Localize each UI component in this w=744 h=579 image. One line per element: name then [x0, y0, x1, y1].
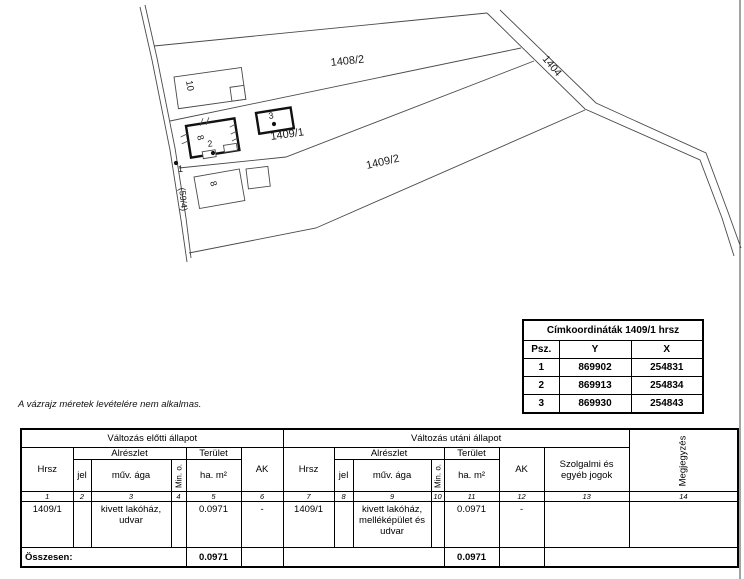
x-value: 254831: [631, 359, 703, 377]
total-row: Összesen: 0.0971 0.0971: [21, 548, 738, 568]
min-o-label: Min. o.: [433, 463, 442, 487]
col-header-terulet-after: Terület: [444, 448, 499, 460]
col-header-hrsz-after: Hrsz: [283, 448, 334, 492]
after-state-header: Változás utáni állapot: [283, 429, 629, 448]
col-number: 14: [629, 492, 738, 502]
cadastral-sketch-page: 1408/2 1409/1 1409/2 1404 (59/4) 10 8 8 …: [0, 0, 744, 579]
before-jel-value: [73, 502, 91, 548]
parcel-label-1409-2: 1409/2: [365, 153, 400, 172]
col-header-min-o-after: Min. o.: [431, 460, 444, 492]
not-to-scale-note: A vázrajz méretek levételére nem alkalma…: [18, 399, 201, 410]
coordinate-table-title: Címkoordináták 1409/1 hrsz: [523, 320, 703, 341]
parcel-1408-2-top-boundary: [154, 13, 487, 46]
col-number: 3: [91, 492, 171, 502]
after-terulet-value: 0.0971: [444, 502, 499, 548]
col-header-x: X: [631, 341, 703, 359]
col-number: 8: [334, 492, 353, 502]
col-number: 12: [499, 492, 544, 502]
min-o-label: Min. o.: [174, 463, 183, 487]
col-header-jel-after: jel: [334, 460, 353, 492]
total-label: Összesen:: [21, 548, 186, 568]
after-ak-value: -: [499, 502, 544, 548]
col-header-terulet-before: Terület: [186, 448, 241, 460]
col-number: 10: [431, 492, 444, 502]
megjegyzes-value: [629, 502, 738, 548]
szolgalmi-value: [544, 502, 629, 548]
coordinate-table-header-row: Psz. Y X: [523, 341, 703, 359]
total-before-ak: [241, 548, 283, 568]
state-header-row: Változás előtti állapot Változás utáni á…: [21, 429, 738, 448]
before-hrsz-value: 1409/1: [21, 502, 73, 548]
col-header-ak-before: AK: [241, 448, 283, 492]
coordinate-row: 1 869902 254831: [523, 359, 703, 377]
y-value: 869930: [559, 395, 631, 414]
psz-value: 3: [523, 395, 559, 414]
col-number: 1: [21, 492, 73, 502]
psz-value: 1: [523, 359, 559, 377]
total-right-spacer: [544, 548, 738, 568]
col-header-min-o-before: Min. o.: [171, 460, 186, 492]
col-header-y: Y: [559, 341, 631, 359]
building-8-main-outline: [178, 113, 240, 161]
col-header-psz: Psz.: [523, 341, 559, 359]
before-state-header: Változás előtti állapot: [21, 429, 283, 448]
col-number: 13: [544, 492, 629, 502]
total-after-ak: [499, 548, 544, 568]
parcel-label-1408-2: 1408/2: [330, 54, 365, 69]
building-8-lower-outline: [194, 169, 245, 209]
after-jel-value: [334, 502, 353, 548]
col-header-ha-m2-before: ha. m²: [186, 460, 241, 492]
parcel-data-row: 1409/1 kivett lakóház, udvar 0.0971 - 14…: [21, 502, 738, 548]
col-number: 2: [73, 492, 91, 502]
before-terulet-value: 0.0971: [186, 502, 241, 548]
road-1404-left-line: [487, 13, 734, 256]
col-header-alreszlet-after: Alrészlet: [334, 448, 444, 460]
small-outbuilding-outline: [246, 166, 270, 189]
point-label-1: 1: [178, 164, 183, 174]
col-number: 6: [241, 492, 283, 502]
col-number: 7: [283, 492, 334, 502]
col-header-szolgalmi: Szolgalmi és egyéb jogok: [544, 448, 629, 492]
col-header-ha-m2-after: ha. m²: [444, 460, 499, 492]
y-value: 869902: [559, 359, 631, 377]
col-header-muv-aga-before: műv. ága: [91, 460, 171, 492]
road-label-1404: 1404: [540, 53, 564, 79]
col-number: 9: [353, 492, 431, 502]
coordinate-table: Címkoordináták 1409/1 hrsz Psz. Y X 1 86…: [522, 319, 704, 414]
col-header-alreszlet-before: Alrészlet: [73, 448, 186, 460]
after-hrsz-value: 1409/1: [283, 502, 334, 548]
col-header-muv-aga-after: műv. ága: [353, 460, 431, 492]
change-table: Változás előtti állapot Változás utáni á…: [20, 428, 739, 568]
psz-value: 2: [523, 377, 559, 395]
road-1404-right-line: [500, 10, 741, 248]
total-after-area: 0.0971: [444, 548, 499, 568]
coordinate-point-3: [272, 122, 276, 126]
col-header-ak-after: AK: [499, 448, 544, 492]
y-value: 869913: [559, 377, 631, 395]
col-number: 5: [186, 492, 241, 502]
after-muv-aga-value: kivett lakóház, melléképület és udvar: [353, 502, 431, 548]
total-after-spacer: [283, 548, 444, 568]
col-header-hrsz-before: Hrsz: [21, 448, 73, 492]
building-label-10: 10: [183, 80, 196, 92]
col-number: 4: [171, 492, 186, 502]
col-number: 11: [444, 492, 499, 502]
x-value: 254834: [631, 377, 703, 395]
col-header-megjegyzes: Megjegyzés: [629, 429, 738, 492]
megjegyzes-label: Megjegyzés: [678, 435, 689, 486]
x-value: 254843: [631, 395, 703, 414]
column-number-row: 1 2 3 4 5 6 7 8 9 10 11 12 13 14: [21, 492, 738, 502]
total-before-area: 0.0971: [186, 548, 241, 568]
coordinate-row: 2 869913 254834: [523, 377, 703, 395]
coordinate-point-2: [211, 151, 215, 155]
before-min-o-value: [171, 502, 186, 548]
coordinate-row: 3 869930 254843: [523, 395, 703, 414]
after-min-o-value: [431, 502, 444, 548]
before-ak-value: -: [241, 502, 283, 548]
before-muv-aga-value: kivett lakóház, udvar: [91, 502, 171, 548]
col-header-jel-before: jel: [73, 460, 91, 492]
